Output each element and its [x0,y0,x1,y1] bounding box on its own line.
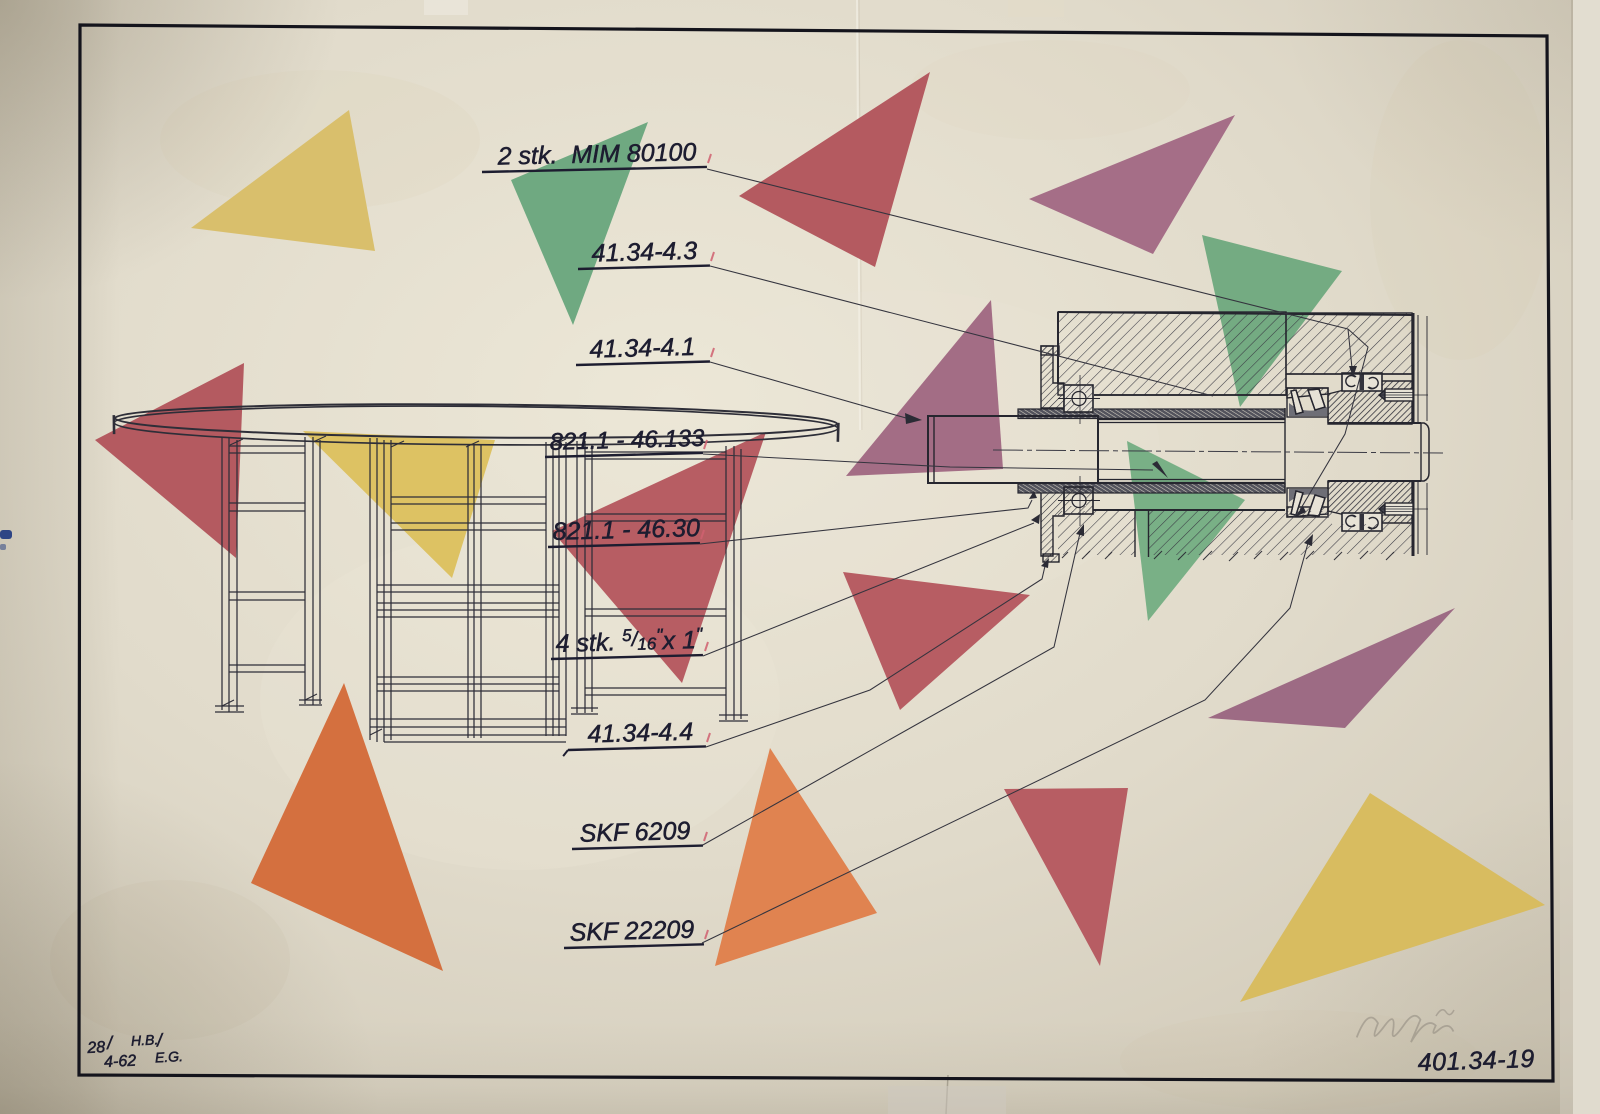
svg-text:2 stk. MIM 80100: 2 stk. MIM 80100 [496,138,696,171]
svg-text:41.34-4.4: 41.34-4.4 [587,718,693,749]
svg-text:821.1 - 46.133: 821.1 - 46.133 [549,425,705,456]
svg-text:E.G.: E.G. [155,1048,184,1065]
svg-text:SKF 22209: SKF 22209 [569,916,694,947]
svg-text:821.1 - 46.30: 821.1 - 46.30 [552,514,700,546]
svg-text:41.34-4.1: 41.34-4.1 [589,333,695,364]
svg-text:SKF 6209: SKF 6209 [579,817,691,848]
svg-text:4-62: 4-62 [104,1052,137,1071]
svg-text:401.34-19: 401.34-19 [1417,1045,1535,1077]
svg-text:41.34-4.3: 41.34-4.3 [591,237,697,268]
svg-text:H.B.: H.B. [131,1031,159,1048]
